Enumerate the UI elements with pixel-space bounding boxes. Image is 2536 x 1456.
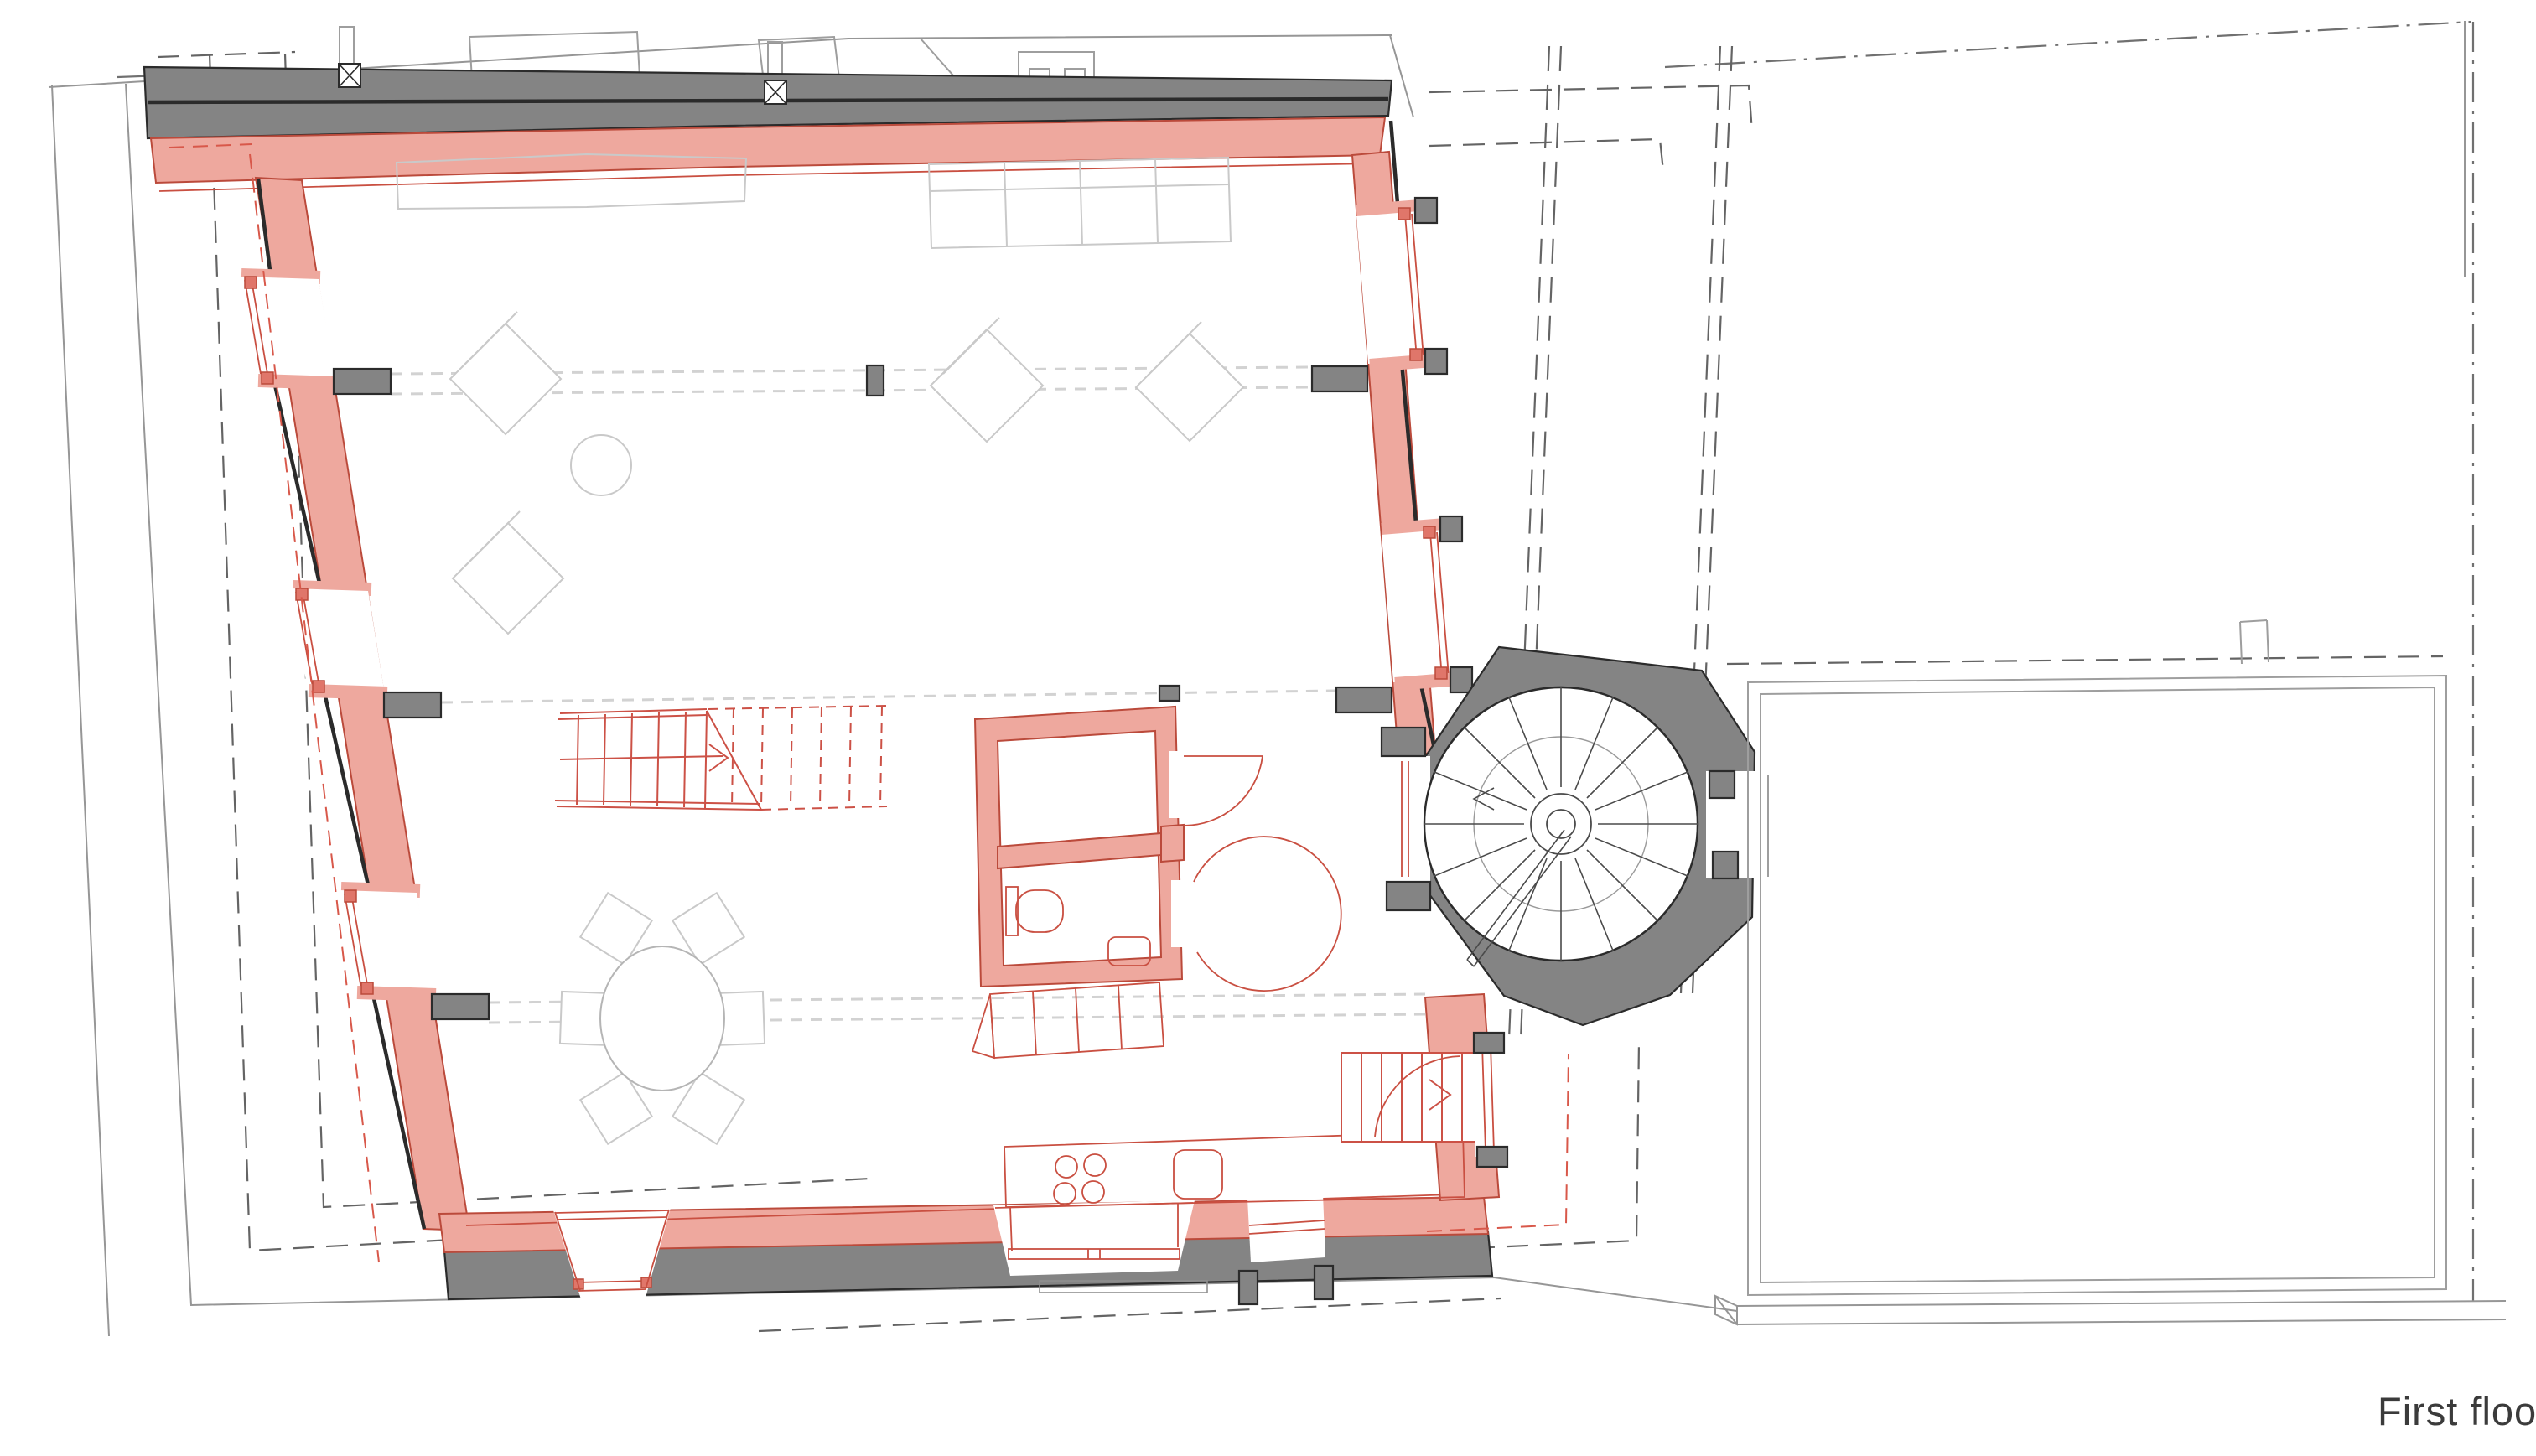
wc-door-opening (1171, 880, 1193, 947)
wc-partition-wall (998, 833, 1161, 868)
stair-tower (1382, 647, 1768, 1025)
stair-direction-arrow (709, 744, 728, 771)
beam-lines (391, 367, 1425, 1023)
skylight-diamond (931, 318, 1043, 442)
tower-landing-opening (1382, 728, 1430, 910)
floor-plan-page: First floor (0, 0, 2536, 1456)
right-window-bay (1356, 198, 1447, 374)
wc-block (972, 707, 1341, 1058)
dining-table (600, 946, 724, 1091)
wc-door-opening (1169, 751, 1190, 818)
post (1159, 686, 1180, 701)
skylight-diamond (453, 511, 563, 634)
floor-label: First floor (2378, 1389, 2536, 1433)
exit-door (1474, 1033, 1507, 1167)
floor-plan-drawing: First floor (0, 0, 2536, 1456)
pier (334, 369, 391, 394)
cooktop-icon (1054, 1154, 1106, 1205)
toilet-icon (1006, 887, 1063, 935)
dining-set (560, 893, 765, 1143)
left-window-bay (291, 587, 387, 693)
kitchen-sink-icon (1174, 1150, 1222, 1199)
post (867, 365, 884, 396)
pier (1336, 687, 1392, 712)
door-swing (1194, 837, 1341, 991)
wc-counter (972, 982, 1164, 1058)
round-fixture (571, 435, 631, 495)
furniture (397, 154, 1243, 1144)
exit-staircase (1341, 1033, 1507, 1167)
left-window-bay (240, 275, 337, 384)
tower-niche-opening (1706, 771, 1768, 878)
left-window-bay (340, 889, 436, 995)
terrace (1715, 21, 2506, 1324)
skylight-diamond (450, 312, 561, 434)
right-window-bay (1382, 516, 1472, 692)
pier (1312, 366, 1367, 391)
door-swing (1184, 756, 1263, 826)
main-staircase (555, 706, 887, 810)
skylight-diamond (1136, 322, 1243, 441)
pier (384, 692, 441, 718)
bottom-window-bay (1239, 1194, 1333, 1304)
pier (432, 994, 489, 1019)
